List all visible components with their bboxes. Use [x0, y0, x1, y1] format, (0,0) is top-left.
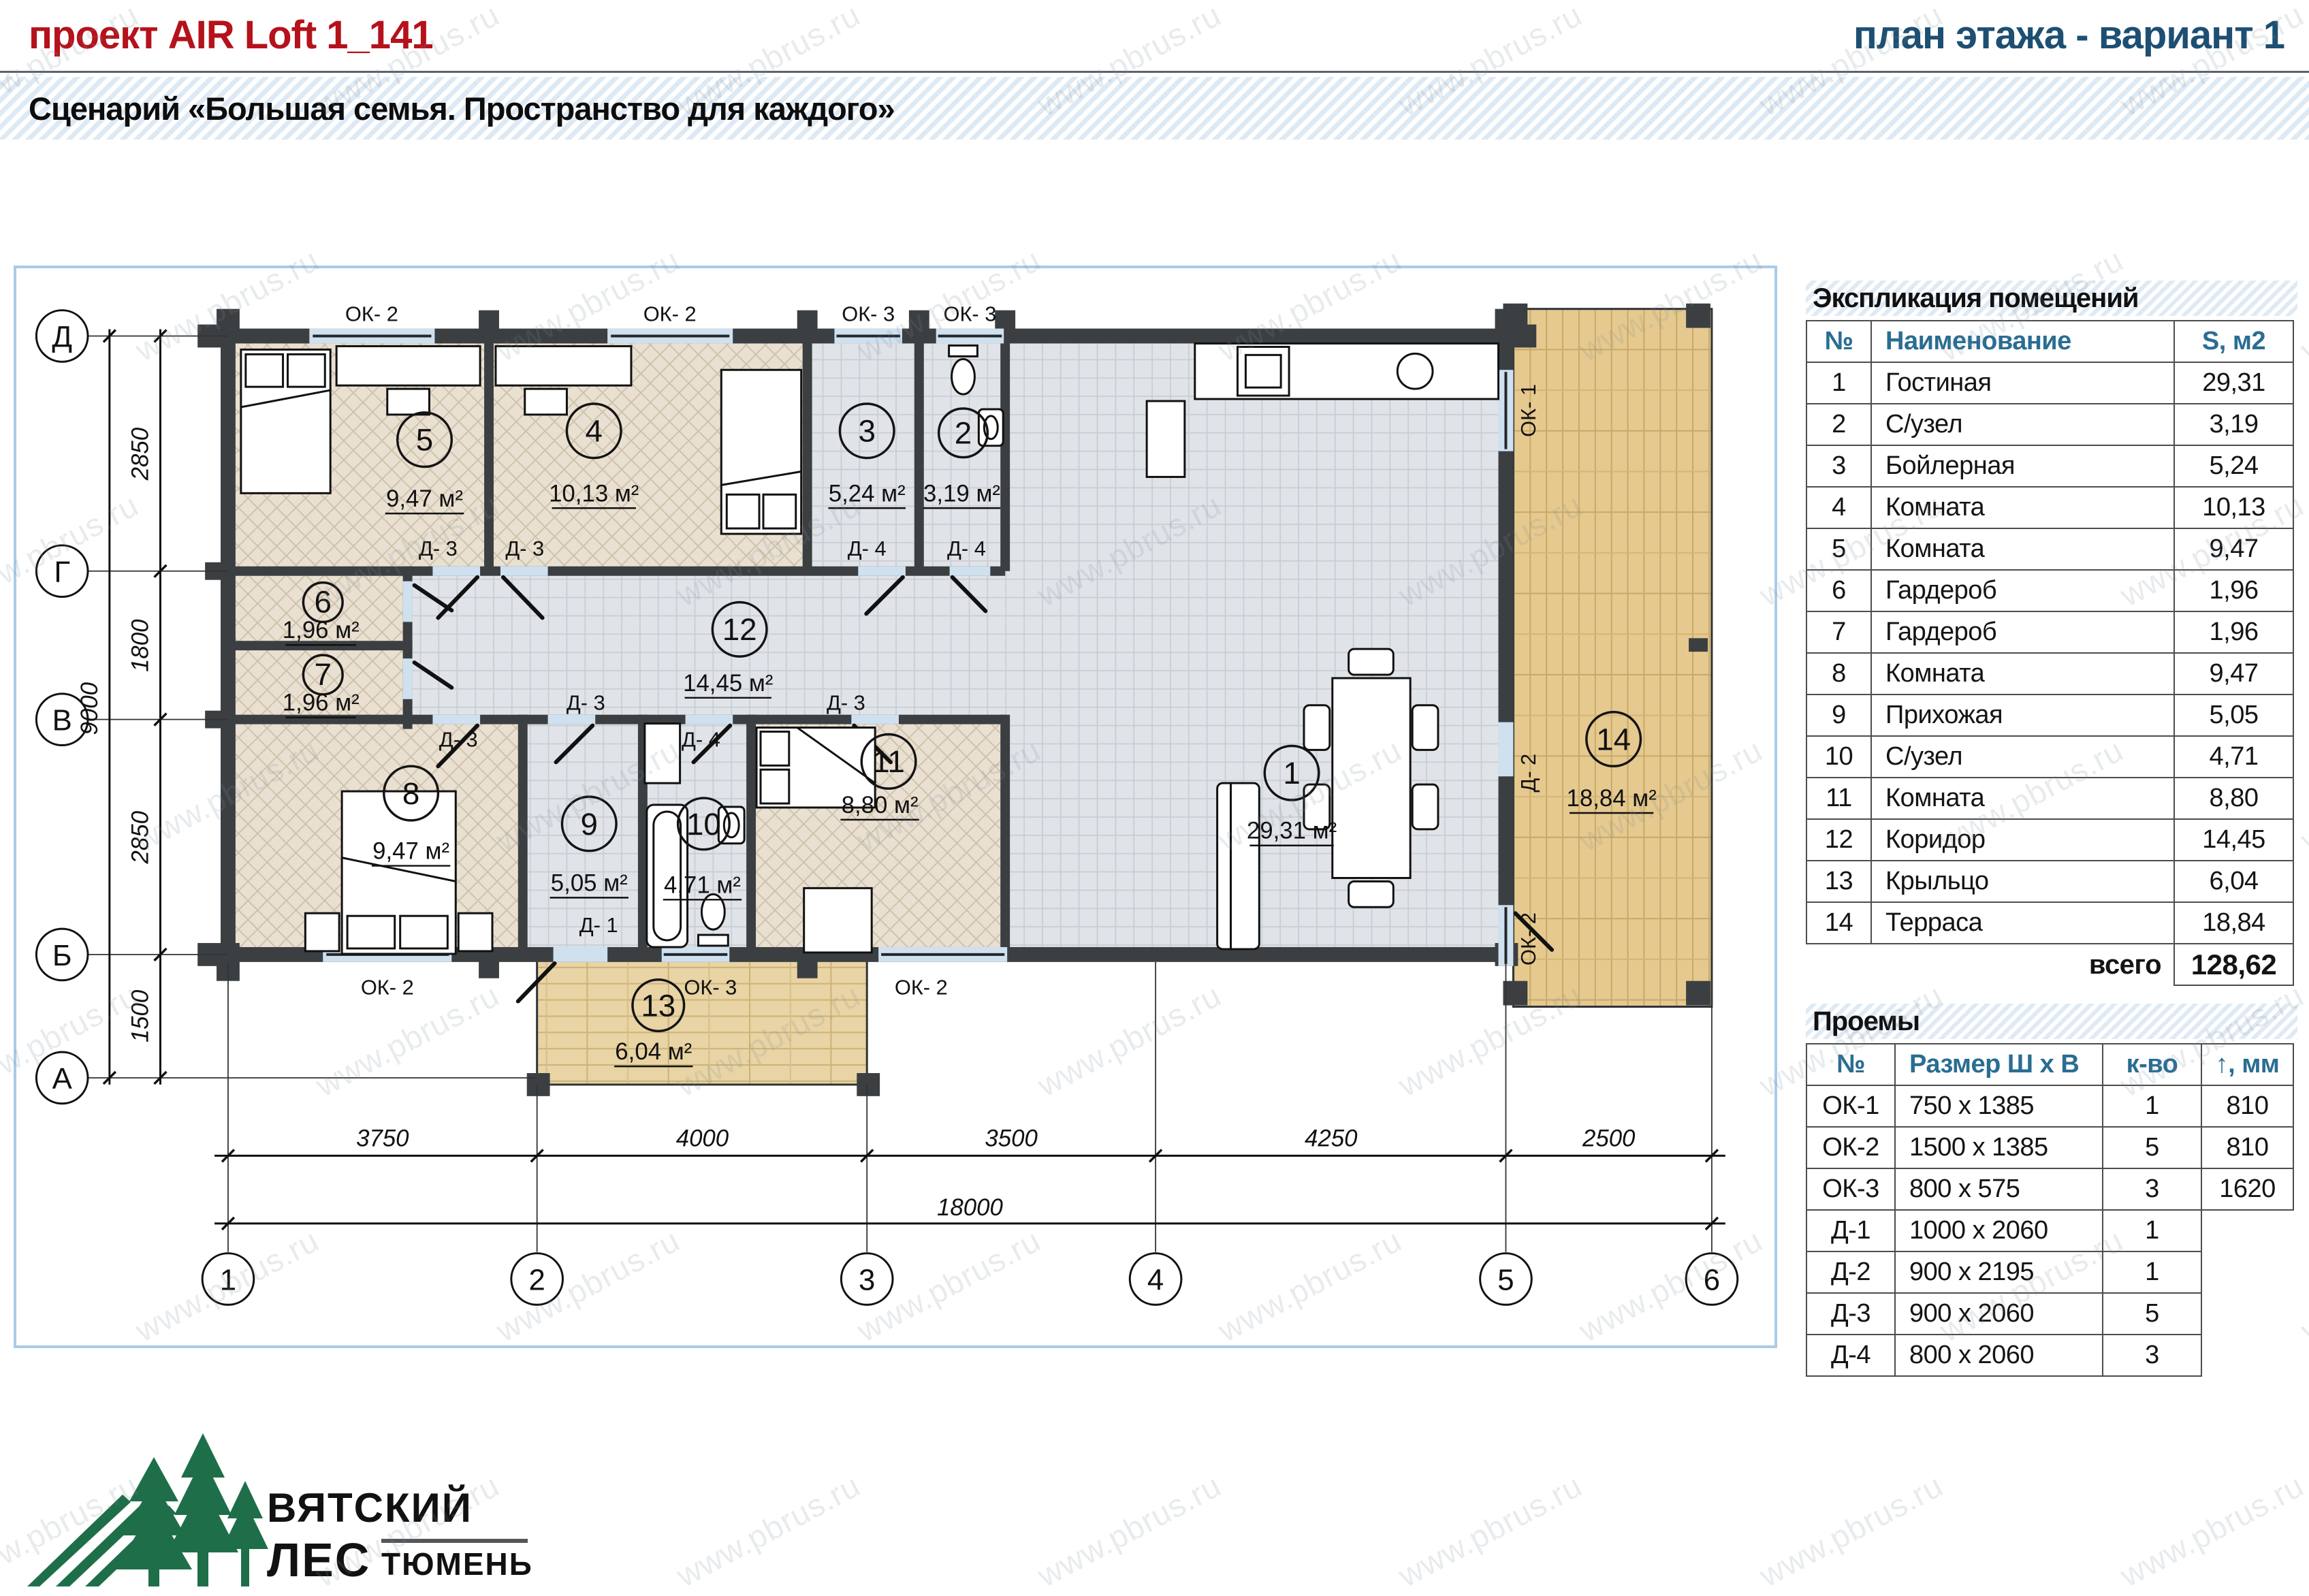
table-row: 11Комната8,80 [1806, 778, 2293, 819]
cell-num: Д-1 [1806, 1210, 1895, 1251]
col-num: № [1806, 321, 1871, 362]
table-row: ОК-21500 х 13855810 [1806, 1127, 2293, 1168]
cell-qty: 3 [2103, 1168, 2201, 1210]
logo-trees-icon [27, 1433, 268, 1586]
scenario-text: Сценарий «Большая семья. Пространство дл… [29, 90, 895, 127]
room-number: 6 [315, 584, 332, 619]
door-label: Д- 1 [579, 913, 618, 937]
cell-area: 5,24 [2174, 445, 2293, 487]
cell-qty: 1 [2103, 1251, 2201, 1293]
cell-size: 1000 х 2060 [1895, 1210, 2103, 1251]
cell-size: 900 х 2195 [1895, 1251, 2103, 1293]
cell-num: 1 [1806, 362, 1871, 404]
cell-qty: 5 [2103, 1293, 2201, 1335]
logo-line1: ВЯТСКИЙ [267, 1485, 473, 1531]
cell-name: Комната [1871, 653, 2174, 695]
cell-area: 1,96 [2174, 611, 2293, 653]
room-floors [236, 309, 1712, 1085]
col-area: S, м2 [2174, 321, 2293, 362]
cell-area: 3,19 [2174, 404, 2293, 445]
axis-label: Г [54, 556, 70, 589]
cell-qty: 3 [2103, 1335, 2201, 1376]
cell-name: Комната [1871, 487, 2174, 528]
dim-bottom-total: 18000 [937, 1194, 1003, 1221]
cell-qty: 1 [2103, 1210, 2201, 1251]
cell-qty: 1 [2103, 1085, 2201, 1127]
cell-area: 6,04 [2174, 861, 2293, 902]
table-row: Д-3900 х 20605 [1806, 1293, 2293, 1335]
total-row: всего 128,62 [1806, 944, 2293, 985]
cell-name: Коридор [1871, 819, 2174, 861]
cell-area: 9,47 [2174, 528, 2293, 570]
cell-height: 810 [2201, 1085, 2293, 1127]
room-area: 1,96 м² [283, 617, 360, 643]
cell-num: 3 [1806, 445, 1871, 487]
cell-name: Гардероб [1871, 570, 2174, 611]
room-area: 4,71 м² [664, 872, 741, 898]
dim-bottom: 4000 [676, 1125, 729, 1151]
table-row: 2С/узел3,19 [1806, 404, 2293, 445]
room-area: 3,19 м² [923, 480, 1000, 507]
axis-label: 5 [1497, 1263, 1514, 1296]
window-label: ОК- 2 [895, 976, 948, 1000]
door-label: Д- 3 [827, 691, 865, 715]
cell-num: Д-3 [1806, 1293, 1895, 1335]
cell-size: 800 х 2060 [1895, 1335, 2103, 1376]
cell-num: 5 [1806, 528, 1871, 570]
total-value: 128,62 [2174, 944, 2293, 985]
dim-left-total: 9000 [76, 682, 103, 735]
dim-bottom: 3750 [356, 1125, 409, 1151]
col-size: Размер Ш х В [1895, 1044, 2103, 1085]
table-row: Д-2900 х 21951 [1806, 1251, 2293, 1293]
room-area: 14,45 м² [683, 670, 773, 697]
table-row: 13Крыльцо6,04 [1806, 861, 2293, 902]
cell-num: 4 [1806, 487, 1871, 528]
col-num: № [1806, 1044, 1895, 1085]
window-label: ОК- 3 [684, 976, 737, 1000]
table-row: 14Терраса18,84 [1806, 902, 2293, 944]
cell-size: 1500 х 1385 [1895, 1127, 2103, 1168]
window-label: ОК- 2 [1516, 912, 1540, 965]
dim-bottom: 4250 [1305, 1125, 1358, 1151]
door-label: Д- 4 [947, 537, 986, 560]
table-row: Д-11000 х 20601 [1806, 1210, 2293, 1251]
cell-num: 7 [1806, 611, 1871, 653]
room-area: 5,05 м² [551, 869, 628, 896]
col-name: Наименование [1871, 321, 2174, 362]
cell-num: 13 [1806, 861, 1871, 902]
cell-area: 4,71 [2174, 736, 2293, 778]
door-label: Д- 3 [439, 727, 478, 751]
table-row: 6Гардероб1,96 [1806, 570, 2293, 611]
explication-title: Экспликация помещений [1806, 281, 2297, 316]
total-label: всего [1871, 944, 2174, 985]
axis-label: Б [52, 939, 72, 972]
door-label: Д- 3 [567, 691, 605, 715]
door-label: Д- 4 [848, 537, 887, 560]
room-area: 5,24 м² [829, 480, 906, 507]
window-label: ОК- 2 [643, 302, 697, 326]
cell-name: Бойлерная [1871, 445, 2174, 487]
dim-left: 2850 [127, 427, 154, 481]
table-row: 5Комната9,47 [1806, 528, 2293, 570]
cell-num: 10 [1806, 736, 1871, 778]
cell-num: 8 [1806, 653, 1871, 695]
cell-area: 10,13 [2174, 487, 2293, 528]
floor-plan-panel: 1 2 3 4 5 6 7 8 9 10 11 12 13 14 29,31 м… [14, 266, 1777, 1348]
table-header-row: № Наименование S, м2 [1806, 321, 2293, 362]
col-height: ↑, мм [2201, 1044, 2293, 1085]
table-row: 1Гостиная29,31 [1806, 362, 2293, 404]
cell-name: Гардероб [1871, 611, 2174, 653]
dim-left: 2850 [127, 810, 154, 864]
dim-left: 1500 [127, 989, 154, 1042]
dim-bottom: 2500 [1582, 1125, 1636, 1151]
room-area: 9,47 м² [372, 838, 449, 865]
room-number: 8 [402, 776, 419, 811]
cell-num: ОК-1 [1806, 1085, 1895, 1127]
window-label: ОК- 1 [1516, 384, 1540, 437]
cell-name: Прихожая [1871, 695, 2174, 736]
room-number: 11 [872, 744, 905, 779]
cell-num: 11 [1806, 778, 1871, 819]
cell-num: ОК-2 [1806, 1127, 1895, 1168]
explication-table: № Наименование S, м2 1Гостиная29,31 2С/у… [1806, 320, 2294, 986]
axis-label: Д [52, 320, 72, 353]
cell-area: 18,84 [2174, 902, 2293, 944]
table-row: ОК-3800 х 57531620 [1806, 1168, 2293, 1210]
room-number: 3 [858, 414, 875, 449]
dim-bottom: 3500 [985, 1125, 1038, 1151]
room-area: 8,80 м² [842, 792, 919, 818]
cell-num: 12 [1806, 819, 1871, 861]
room-number: 10 [686, 807, 721, 842]
cell-area: 8,80 [2174, 778, 2293, 819]
window-label: ОК- 2 [345, 302, 398, 326]
openings-title: Проемы [1806, 1004, 2297, 1039]
room-area: 1,96 м² [283, 690, 360, 716]
axis-label: В [52, 704, 72, 737]
plan-variant-title: план этажа - вариант 1 [1853, 12, 2284, 58]
door-label: Д- 3 [505, 537, 544, 560]
page: www.pbrus.ruwww.pbrus.ruwww.pbrus.ruwww.… [0, 0, 2309, 1596]
cell-num: 6 [1806, 570, 1871, 611]
table-row: 7Гардероб1,96 [1806, 611, 2293, 653]
logo-city: ТЮМЕНЬ [381, 1546, 533, 1582]
openings-table: № Размер Ш х В к-во ↑, мм ОК-1750 х 1385… [1806, 1043, 2294, 1377]
cell-num: Д-2 [1806, 1251, 1895, 1293]
cell-name: С/узел [1871, 736, 2174, 778]
room-area: 10,13 м² [549, 480, 639, 507]
cell-height: 1620 [2201, 1168, 2293, 1210]
room-area: 18,84 м² [1567, 785, 1657, 812]
window-label: ОК- 3 [943, 302, 996, 326]
axis-label: 2 [528, 1263, 545, 1296]
window-label: ОК- 3 [842, 302, 895, 326]
header-divider [0, 71, 2309, 73]
logo-line2: ЛЕС [267, 1533, 370, 1586]
cell-name: Комната [1871, 778, 2174, 819]
dim-left: 1800 [127, 619, 154, 672]
floor-plan-drawing: 1 2 3 4 5 6 7 8 9 10 11 12 13 14 29,31 м… [16, 268, 1774, 1345]
room-area: 6,04 м² [615, 1038, 692, 1065]
door-label: Д- 4 [682, 727, 720, 751]
axis-label: 4 [1147, 1263, 1164, 1296]
cell-area: 5,05 [2174, 695, 2293, 736]
cell-size: 750 х 1385 [1895, 1085, 2103, 1127]
cell-name: Комната [1871, 528, 2174, 570]
axis-label: 1 [220, 1263, 236, 1296]
cell-num: ОК-3 [1806, 1168, 1895, 1210]
table-row: Д-4800 х 20603 [1806, 1335, 2293, 1376]
table-row: 4Комната10,13 [1806, 487, 2293, 528]
cell-num: 9 [1806, 695, 1871, 736]
room-number: 13 [641, 988, 675, 1023]
table-row: 10С/узел4,71 [1806, 736, 2293, 778]
cell-num: Д-4 [1806, 1335, 1895, 1376]
room-area: 9,47 м² [386, 485, 463, 512]
cell-area: 1,96 [2174, 570, 2293, 611]
cell-num: 2 [1806, 404, 1871, 445]
cell-qty: 5 [2103, 1127, 2201, 1168]
cell-name: Гостиная [1871, 362, 2174, 404]
tables-sidebar: Экспликация помещений № Наименование S, … [1806, 281, 2297, 1394]
room-number: 12 [722, 612, 757, 647]
room-number: 2 [955, 416, 972, 451]
table-row: 9Прихожая5,05 [1806, 695, 2293, 736]
scenario-bar: Сценарий «Большая семья. Пространство дл… [0, 77, 2309, 140]
project-title: проект AIR Loft 1_141 [29, 12, 433, 58]
cell-num: 14 [1806, 902, 1871, 944]
cell-size: 800 х 575 [1895, 1168, 2103, 1210]
table-header-row: № Размер Ш х В к-во ↑, мм [1806, 1044, 2293, 1085]
table-row: 8Комната9,47 [1806, 653, 2293, 695]
room-number: 1 [1283, 756, 1300, 791]
table-row: 3Бойлерная5,24 [1806, 445, 2293, 487]
room-number: 5 [416, 423, 433, 458]
room-number: 14 [1596, 722, 1631, 756]
room-area: 29,31 м² [1247, 818, 1337, 844]
room-number: 7 [315, 657, 332, 692]
cell-height: 810 [2201, 1127, 2293, 1168]
room-number: 4 [586, 414, 603, 449]
cell-area: 29,31 [2174, 362, 2293, 404]
cell-size: 900 х 2060 [1895, 1293, 2103, 1335]
cell-name: С/узел [1871, 404, 2174, 445]
window-label: ОК- 2 [361, 976, 414, 1000]
cell-name: Терраса [1871, 902, 2174, 944]
axis-label: 6 [1704, 1263, 1720, 1296]
table-row: ОК-1750 х 13851810 [1806, 1085, 2293, 1127]
col-qty: к-во [2103, 1044, 2201, 1085]
cell-area: 14,45 [2174, 819, 2293, 861]
company-logo: ВЯТСКИЙ ЛЕС ТЮМЕНЬ [20, 1416, 552, 1593]
door-label: Д- 3 [419, 537, 458, 560]
door-label: Д- 2 [1516, 754, 1540, 793]
axis-label: А [52, 1062, 73, 1096]
cell-name: Крыльцо [1871, 861, 2174, 902]
room-number: 9 [581, 807, 598, 842]
axis-label: 3 [859, 1263, 875, 1296]
cell-area: 9,47 [2174, 653, 2293, 695]
table-row: 12Коридор14,45 [1806, 819, 2293, 861]
